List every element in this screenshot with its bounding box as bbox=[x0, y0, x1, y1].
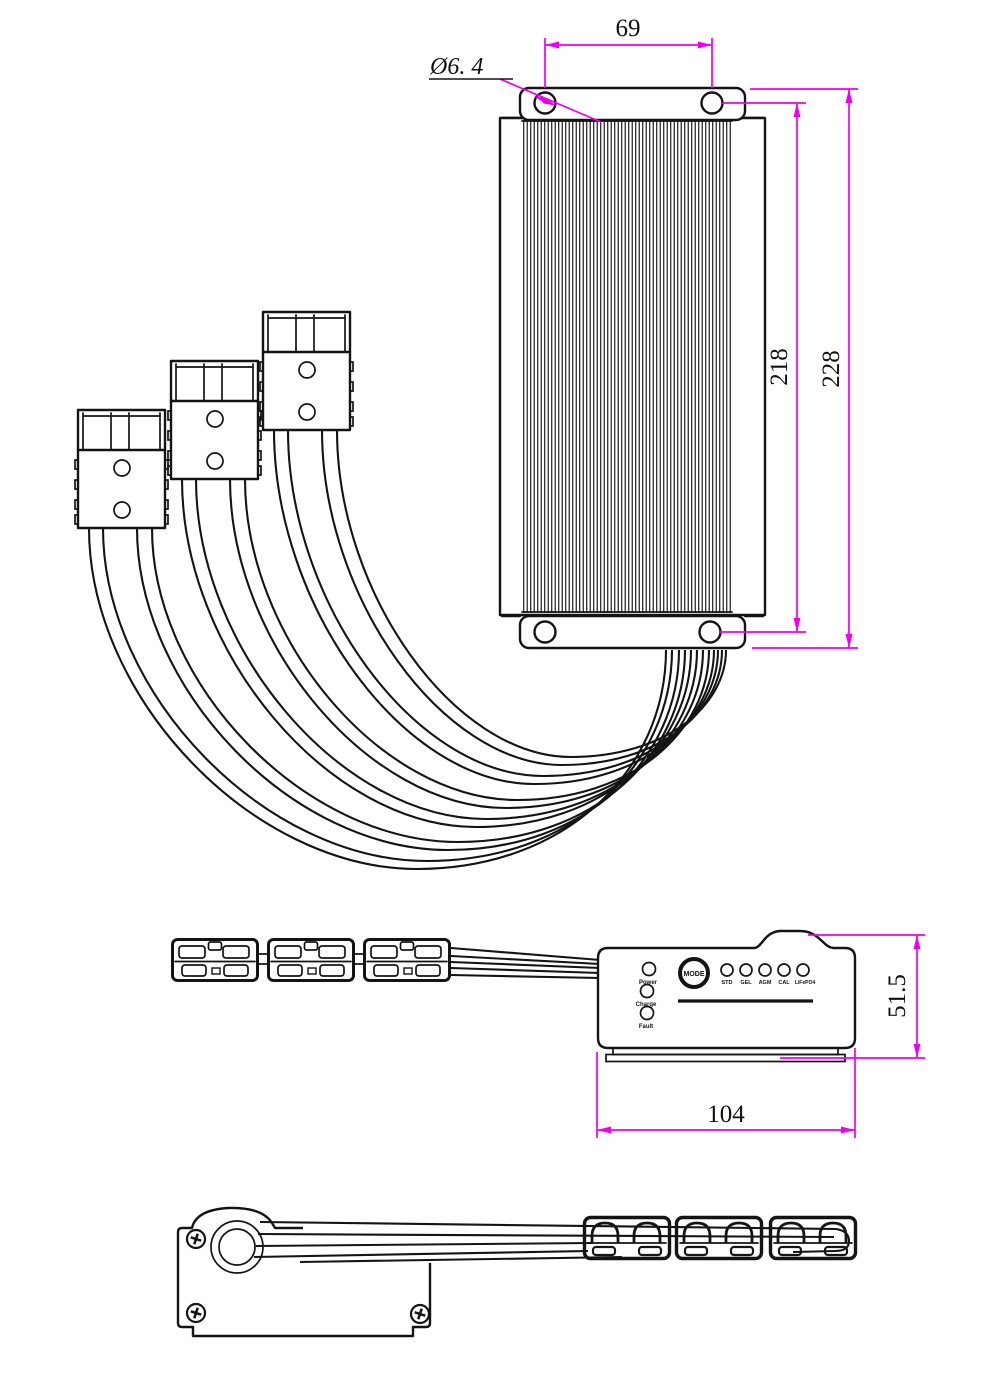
side-body bbox=[598, 931, 855, 1048]
top-view: 69 Ø6. 4 218 228 bbox=[75, 15, 858, 869]
connector-3 bbox=[260, 312, 353, 430]
screw-bottom-right bbox=[411, 1305, 429, 1323]
bottom-connector-2 bbox=[677, 1218, 762, 1259]
fault-led-label: Fault bbox=[639, 1024, 653, 1030]
technical-drawing-page: 69 Ø6. 4 218 228 bbox=[0, 0, 982, 1395]
bottom-view bbox=[178, 1208, 856, 1336]
agm-led-label: AGM bbox=[759, 980, 772, 986]
side-view: Power Charge Fault MODE STD GEL AGM CAL … bbox=[173, 931, 926, 1138]
dimension-hole-spacing: 69 bbox=[545, 15, 712, 88]
charge-led-label: Charge bbox=[636, 1002, 657, 1008]
dim-label-overall-height: 228 bbox=[818, 350, 845, 388]
screw-bottom-left bbox=[187, 1304, 205, 1322]
charger-drawing-svg: 69 Ø6. 4 218 228 bbox=[0, 0, 982, 1395]
heatsink-body bbox=[500, 118, 765, 616]
mode-button-label: MODE bbox=[684, 971, 705, 978]
power-led-label: Power bbox=[639, 980, 658, 986]
cal-led-label: CAL bbox=[778, 980, 790, 986]
side-connector-3 bbox=[365, 940, 450, 981]
bottom-mounting-flange bbox=[520, 616, 745, 648]
side-connector-2 bbox=[269, 940, 354, 981]
dim-label-side-height: 51.5 bbox=[884, 974, 911, 1018]
lifepo4-led-label: LiFePO4 bbox=[795, 980, 816, 986]
std-led-label: STD bbox=[722, 980, 733, 986]
connector-1 bbox=[75, 410, 168, 528]
bottom-connector-1 bbox=[585, 1218, 670, 1259]
side-connector-1 bbox=[173, 940, 258, 981]
dim-label-body-height: 218 bbox=[766, 348, 793, 386]
gel-led-label: GEL bbox=[740, 980, 752, 986]
connector-2 bbox=[168, 361, 261, 479]
heatsink-fins bbox=[522, 120, 732, 613]
screw-top-left bbox=[187, 1230, 205, 1248]
end-plate bbox=[178, 1208, 430, 1336]
dim-label-side-width: 104 bbox=[707, 1101, 745, 1128]
dim-label-hole-diameter: Ø6. 4 bbox=[429, 54, 483, 80]
dim-label-hole-spacing: 69 bbox=[616, 15, 641, 42]
